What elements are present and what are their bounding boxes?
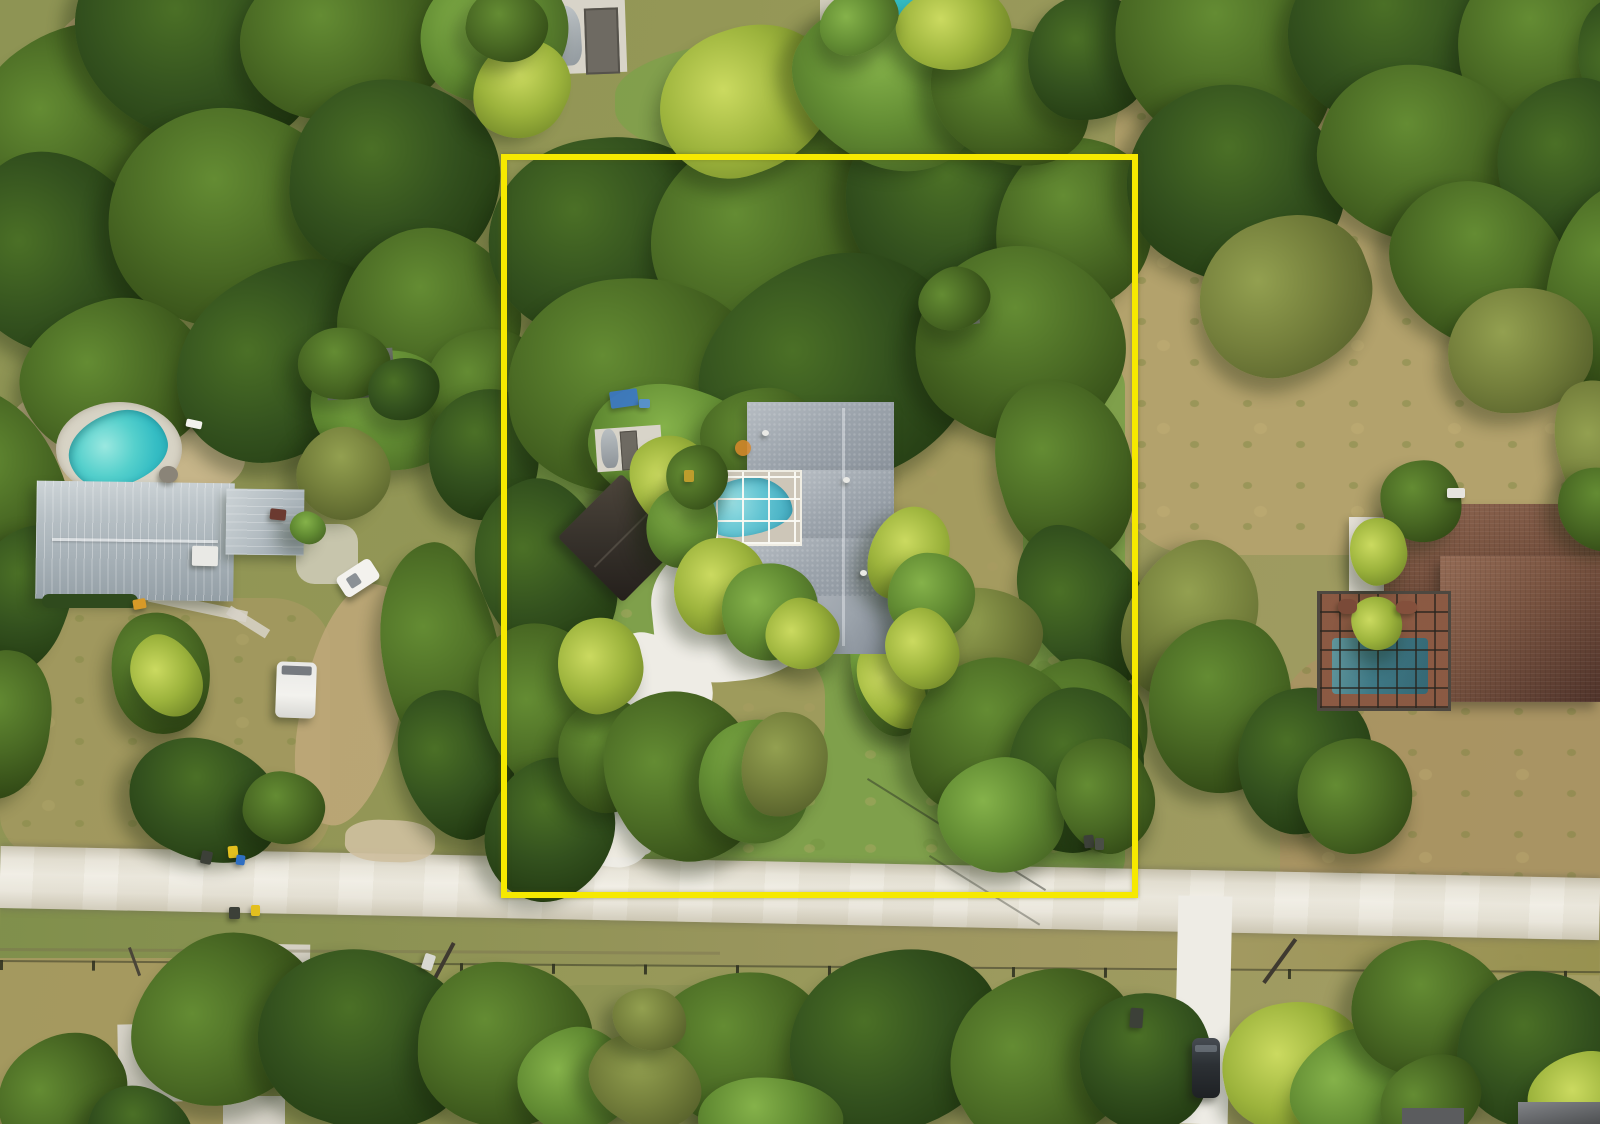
patio-chairs — [1396, 601, 1417, 614]
lounge-chair — [185, 418, 202, 429]
trash-bin-dark-2 — [229, 907, 240, 919]
bin-by-south-driveway — [1129, 1008, 1143, 1029]
fire-pit — [159, 466, 178, 483]
grill — [269, 508, 286, 521]
rooftop-ac-left-house — [192, 546, 218, 566]
aerial-photo — [0, 0, 1600, 1124]
trash-bin-yellow-2 — [251, 905, 260, 916]
ac-unit-right-house — [1447, 488, 1465, 498]
trash-bin-blue — [235, 854, 245, 865]
patio-table — [1338, 599, 1357, 614]
property-boundary-overlay — [501, 154, 1138, 898]
trash-bin-dark — [200, 850, 213, 865]
lawn-mower — [132, 598, 147, 610]
mailbox-post — [421, 953, 436, 972]
